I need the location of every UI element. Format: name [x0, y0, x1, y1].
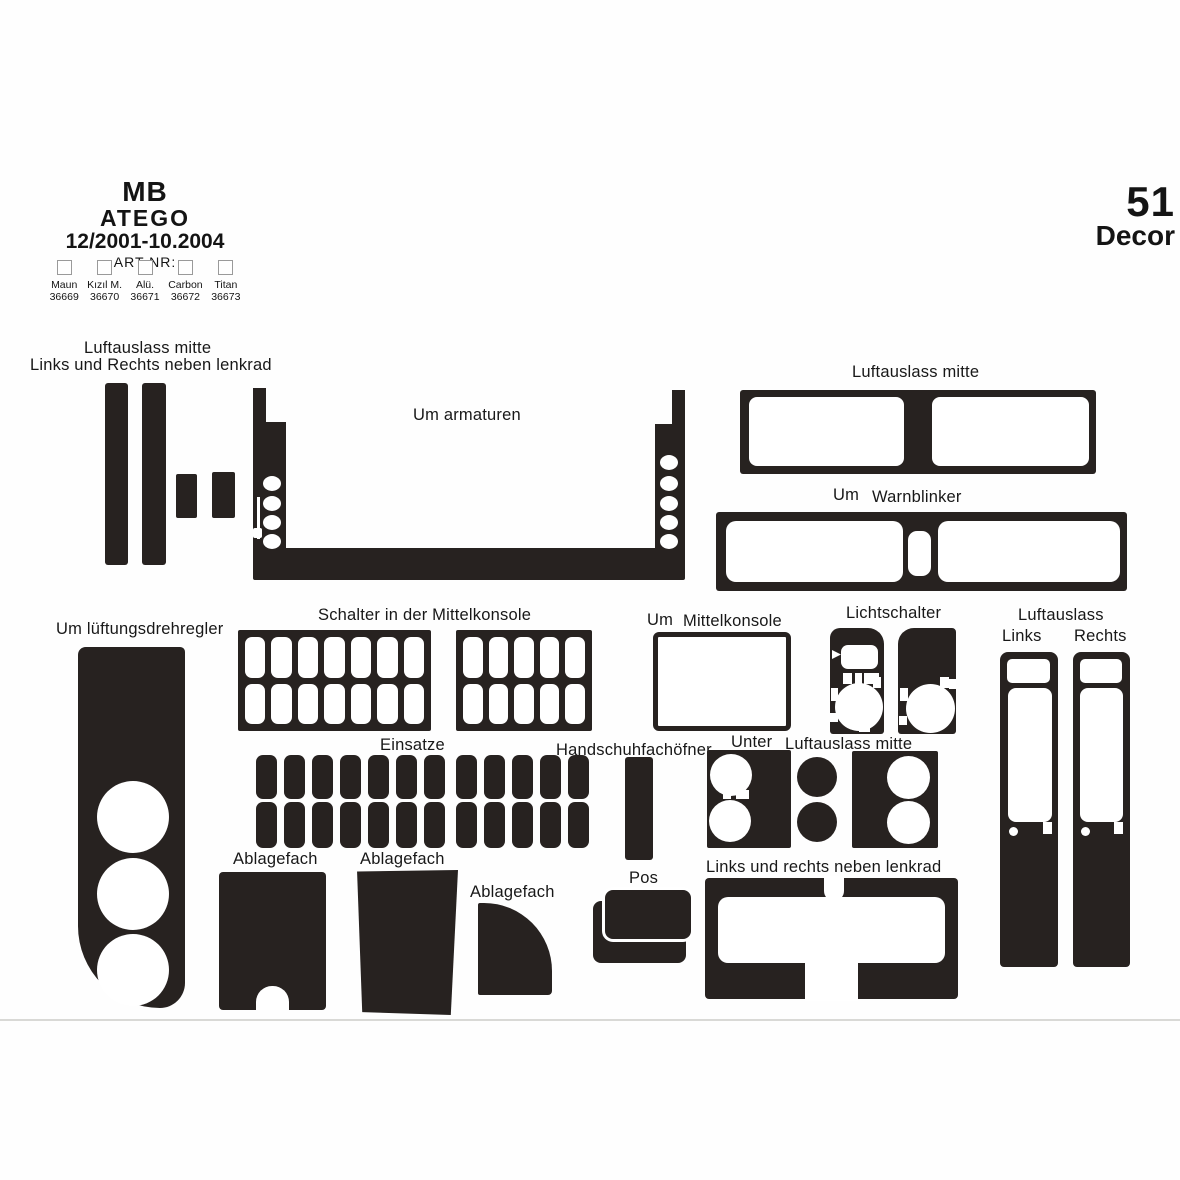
- piece-count-badge: 51 Decor: [1040, 182, 1175, 250]
- vent-opening: [1080, 659, 1122, 683]
- einsatz-piece: [424, 802, 445, 848]
- finish-checkbox: [138, 260, 153, 275]
- dial-hole: [887, 756, 930, 799]
- vent-hole: [660, 496, 678, 511]
- einsatz-piece: [484, 802, 505, 848]
- trim-strip-left-piece: [105, 383, 128, 565]
- dial-hole: [97, 781, 169, 853]
- einsatz-piece: [568, 755, 589, 799]
- switch-hole: [324, 637, 344, 678]
- einsatz-piece: [340, 802, 361, 848]
- vent-opening: [1007, 659, 1050, 683]
- small-block-left-piece: [176, 474, 197, 518]
- finish-option: Carbon 36672: [165, 260, 205, 303]
- dial-hole: [709, 800, 751, 842]
- einsatz-piece: [456, 755, 477, 799]
- switch-hole: [841, 645, 878, 669]
- finish-option: Kızıl M. 36670: [84, 260, 124, 303]
- label-right: Rechts: [1074, 627, 1127, 646]
- switch-hole: [514, 684, 534, 725]
- schalter-panel-left-piece: [238, 630, 431, 731]
- finish-name: Carbon: [168, 279, 202, 291]
- trim-strip-right-piece: [142, 383, 166, 565]
- cut-detail: [832, 650, 841, 659]
- finish-name: Kızıl M.: [87, 279, 122, 291]
- einsatz-piece: [312, 755, 333, 799]
- um-warnblinker-piece: [716, 512, 1127, 591]
- brand-title: MB: [40, 178, 250, 206]
- cut-detail: [830, 713, 838, 722]
- cut-detail: [859, 724, 870, 732]
- links-rechts-lenkrad-piece: [705, 878, 958, 999]
- switch-hole: [351, 637, 371, 678]
- vent-opening: [938, 521, 1120, 582]
- finish-option: Maun 36669: [44, 260, 84, 303]
- switch-hole: [377, 684, 397, 725]
- um-lueftungsdrehregler-piece: [78, 647, 185, 1008]
- finish-checkbox: [178, 260, 193, 275]
- einsatz-piece: [512, 755, 533, 799]
- switch-hole: [404, 637, 424, 678]
- switch-hole: [377, 637, 397, 678]
- einsatz-piece: [540, 802, 561, 848]
- cut-detail: [1043, 822, 1052, 834]
- cut-detail: [926, 724, 937, 732]
- switch-hole: [489, 637, 509, 678]
- switch-hole: [298, 684, 318, 725]
- finish-checkbox: [97, 260, 112, 275]
- label-air-vent: Luftauslass: [1018, 606, 1104, 625]
- model-years: 12/2001-10.2004: [40, 230, 250, 253]
- vent-hole: [660, 534, 678, 549]
- switch-hole: [908, 531, 931, 576]
- panel-opening: [718, 897, 945, 963]
- einsatz-piece: [340, 755, 361, 799]
- einsatz-piece: [284, 755, 305, 799]
- einsatz-piece: [568, 802, 589, 848]
- cut-detail: [900, 688, 908, 701]
- sheet-bottom-divider: [0, 1019, 1180, 1021]
- model-title: ATEGO: [40, 206, 250, 230]
- dial-hole: [887, 801, 930, 844]
- vent-hole: [263, 534, 281, 549]
- vent-hole: [660, 476, 678, 491]
- einsatze-group: [256, 755, 596, 848]
- vent-hole: [263, 476, 281, 491]
- label-storage-1: Ablagefach: [233, 850, 318, 869]
- luftauslass-links-piece: [1000, 652, 1058, 967]
- einsatz-piece: [484, 755, 505, 799]
- label-left: Links: [1002, 627, 1042, 646]
- unter-luftauslass-right-piece: [852, 751, 938, 848]
- einsatz-piece: [368, 802, 389, 848]
- vent-opening: [726, 521, 903, 582]
- einsatz-piece: [284, 802, 305, 848]
- finish-options: Maun 36669 Kızıl M. 36670 Alü. 36671 Car…: [44, 260, 246, 303]
- lichtschalter-left-piece: [830, 628, 884, 734]
- luftauslass-rechts-piece: [1073, 652, 1130, 967]
- pos-front-piece: [605, 890, 691, 939]
- round-insert-piece: [797, 757, 837, 797]
- vent-opening: [1080, 688, 1123, 822]
- cut-detail: [824, 876, 844, 901]
- finish-name: Maun: [51, 279, 77, 291]
- switch-hole: [565, 637, 585, 678]
- kit-header: MB ATEGO 12/2001-10.2004 ART NR:: [40, 178, 250, 270]
- decor-label: Decor: [1040, 222, 1175, 250]
- label-left-right-steering-bottom: Links und rechts neben lenkrad: [706, 858, 941, 877]
- label-hazard-switch: Warnblinker: [872, 488, 962, 507]
- finish-option: Titan 36673: [206, 260, 246, 303]
- vent-opening: [932, 397, 1089, 466]
- label-around-console: Um: [647, 611, 673, 630]
- um-armaturen-piece: [253, 388, 685, 580]
- cut-detail: [949, 679, 956, 689]
- switch-hole: [463, 637, 483, 678]
- vent-hole: [660, 455, 678, 470]
- cut-detail: [723, 791, 731, 799]
- finish-name: Alü.: [136, 279, 154, 291]
- label-light-switch: Lichtschalter: [846, 604, 941, 623]
- einsatz-piece: [456, 802, 477, 848]
- finish-code: 36669: [50, 291, 79, 303]
- einsatz-piece: [368, 755, 389, 799]
- vent-hole: [263, 496, 281, 511]
- label-around-vent-dial: Um lüftungsdrehregler: [56, 620, 223, 639]
- einsatz-piece: [256, 802, 277, 848]
- einsatz-piece: [312, 802, 333, 848]
- cut-detail: [1081, 827, 1090, 836]
- finish-name: Titan: [214, 279, 237, 291]
- vent-hole: [660, 515, 678, 530]
- einsatz-piece: [396, 755, 417, 799]
- einsatz-piece: [396, 802, 417, 848]
- cut-detail: [873, 677, 881, 688]
- switch-hole: [404, 684, 424, 725]
- switch-hole: [298, 637, 318, 678]
- label-left-right-next-steering: Links und Rechts neben lenkrad: [30, 356, 272, 375]
- switch-hole: [514, 637, 534, 678]
- einsatz-piece: [424, 755, 445, 799]
- round-insert-piece: [797, 802, 837, 842]
- label-air-vent-center-right: Luftauslass mitte: [852, 363, 979, 382]
- label-center-console: Mittelkonsole: [683, 612, 782, 631]
- ablagefach-3-piece: [478, 903, 552, 995]
- switch-hole: [540, 684, 560, 725]
- finish-code: 36673: [211, 291, 240, 303]
- ablagefach-1-piece: [219, 872, 326, 1010]
- luftauslass-mitte-frame-piece: [740, 390, 1096, 474]
- vent-opening: [1008, 688, 1052, 822]
- um-armaturen-base: [253, 548, 685, 580]
- finish-code: 36672: [171, 291, 200, 303]
- label-around-warn: Um: [833, 486, 859, 505]
- lichtschalter-right-piece: [898, 628, 956, 734]
- switch-hole: [245, 637, 265, 678]
- switch-hole: [351, 684, 371, 725]
- finish-checkbox: [57, 260, 72, 275]
- finish-code: 36671: [130, 291, 159, 303]
- ablagefach-2-piece: [355, 870, 458, 1015]
- dial-hole: [97, 858, 169, 930]
- dial-hole: [97, 934, 169, 1006]
- handschuhfachoefner-piece: [625, 757, 653, 860]
- um-mittelkonsole-piece: [653, 632, 791, 731]
- cut-detail: [1009, 827, 1018, 836]
- label-inserts: Einsatze: [380, 736, 445, 755]
- cut-detail: [253, 528, 262, 538]
- label-storage-3: Ablagefach: [470, 883, 555, 902]
- vent-hole: [263, 515, 281, 530]
- einsatz-piece: [256, 755, 277, 799]
- cut-detail: [805, 961, 858, 1001]
- cut-detail: [1114, 822, 1123, 834]
- schalter-panel-right-piece: [456, 630, 592, 731]
- switch-hole: [245, 684, 265, 725]
- unter-luftauslass-left-piece: [707, 750, 791, 848]
- finish-code: 36670: [90, 291, 119, 303]
- cut-detail: [940, 677, 949, 688]
- switch-hole: [324, 684, 344, 725]
- cut-detail: [256, 986, 289, 1010]
- label-storage-2: Ablagefach: [360, 850, 445, 869]
- finish-checkbox: [218, 260, 233, 275]
- switch-hole: [463, 684, 483, 725]
- vent-opening: [749, 397, 904, 466]
- label-switches-center-console: Schalter in der Mittelkonsole: [318, 606, 531, 625]
- cut-detail: [899, 716, 907, 725]
- switch-hole: [271, 684, 291, 725]
- small-block-right-piece: [212, 472, 235, 518]
- einsatz-piece: [540, 755, 561, 799]
- switch-hole: [565, 684, 585, 725]
- switch-hole: [489, 684, 509, 725]
- cut-detail: [831, 688, 838, 701]
- label-pos: Pos: [629, 869, 658, 888]
- cut-detail: [736, 790, 749, 799]
- decor-sheet: MB ATEGO 12/2001-10.2004 ART NR: Maun 36…: [0, 0, 1180, 1180]
- switch-hole: [540, 637, 560, 678]
- cut-detail: [843, 673, 852, 684]
- switch-hole: [271, 637, 291, 678]
- piece-count: 51: [1040, 182, 1175, 222]
- finish-option: Alü. 36671: [125, 260, 165, 303]
- einsatz-piece: [512, 802, 533, 848]
